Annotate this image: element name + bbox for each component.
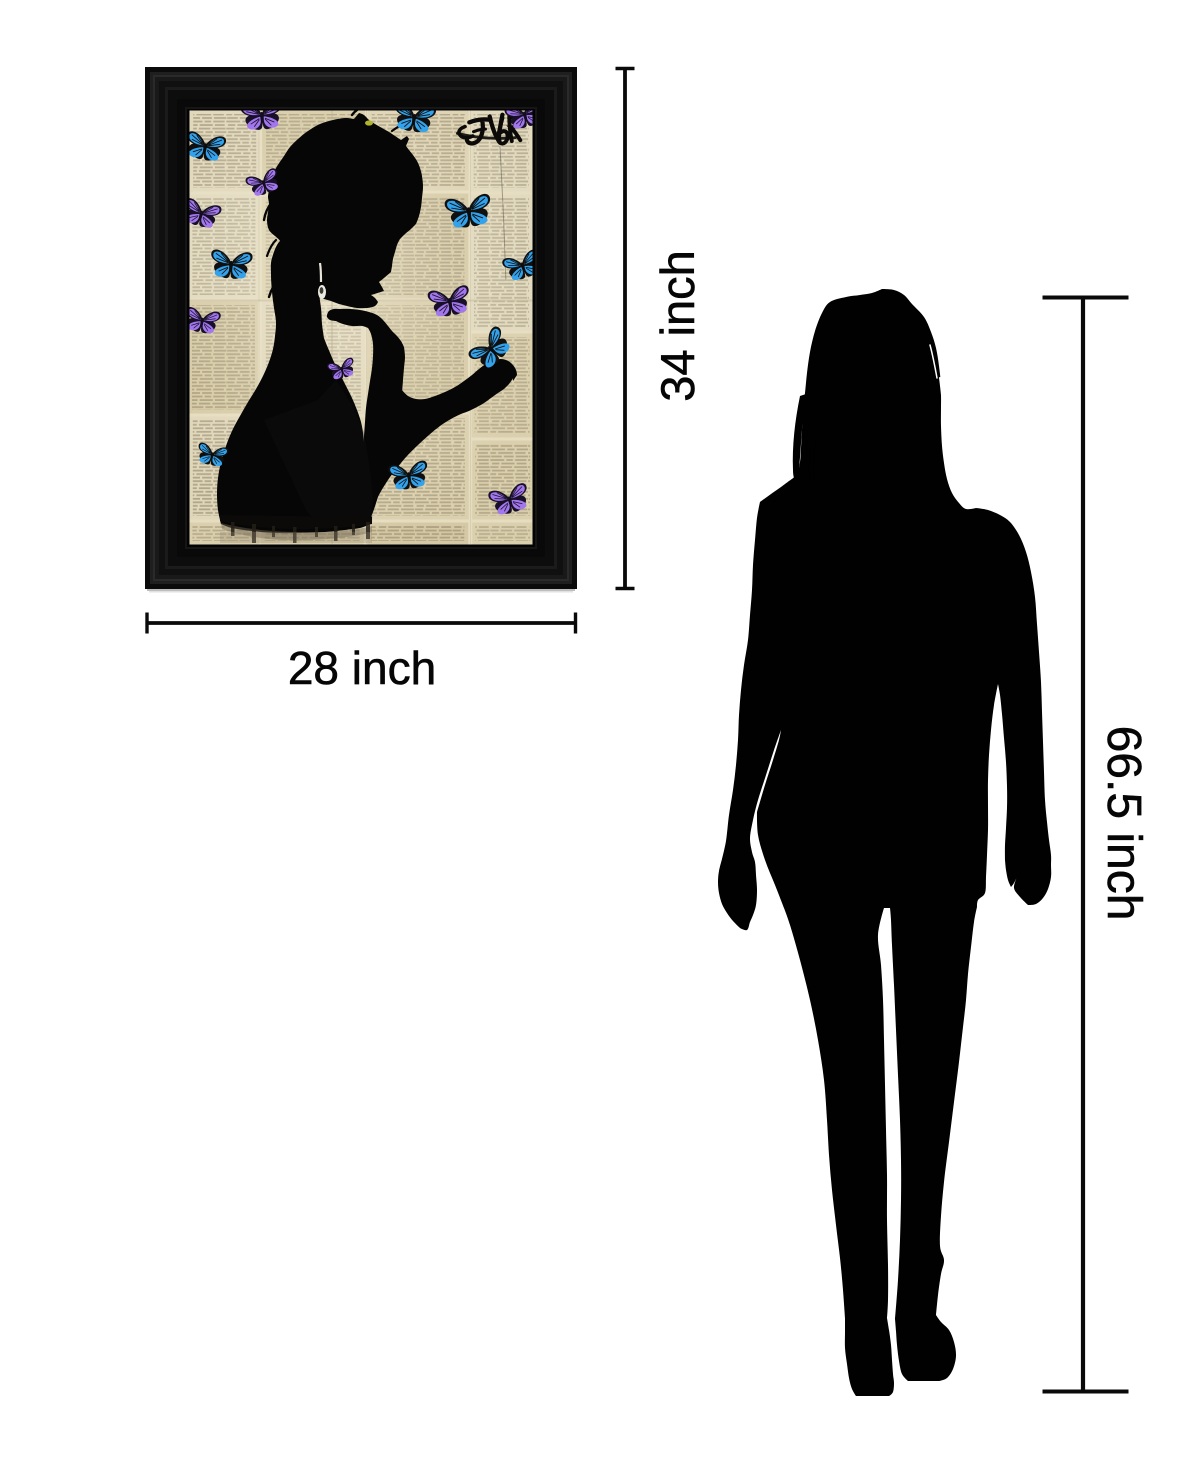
svg-text:66.5 inch: 66.5 inch bbox=[1097, 726, 1150, 921]
svg-text:34 inch: 34 inch bbox=[651, 250, 704, 402]
svg-text:28 inch: 28 inch bbox=[288, 642, 436, 694]
